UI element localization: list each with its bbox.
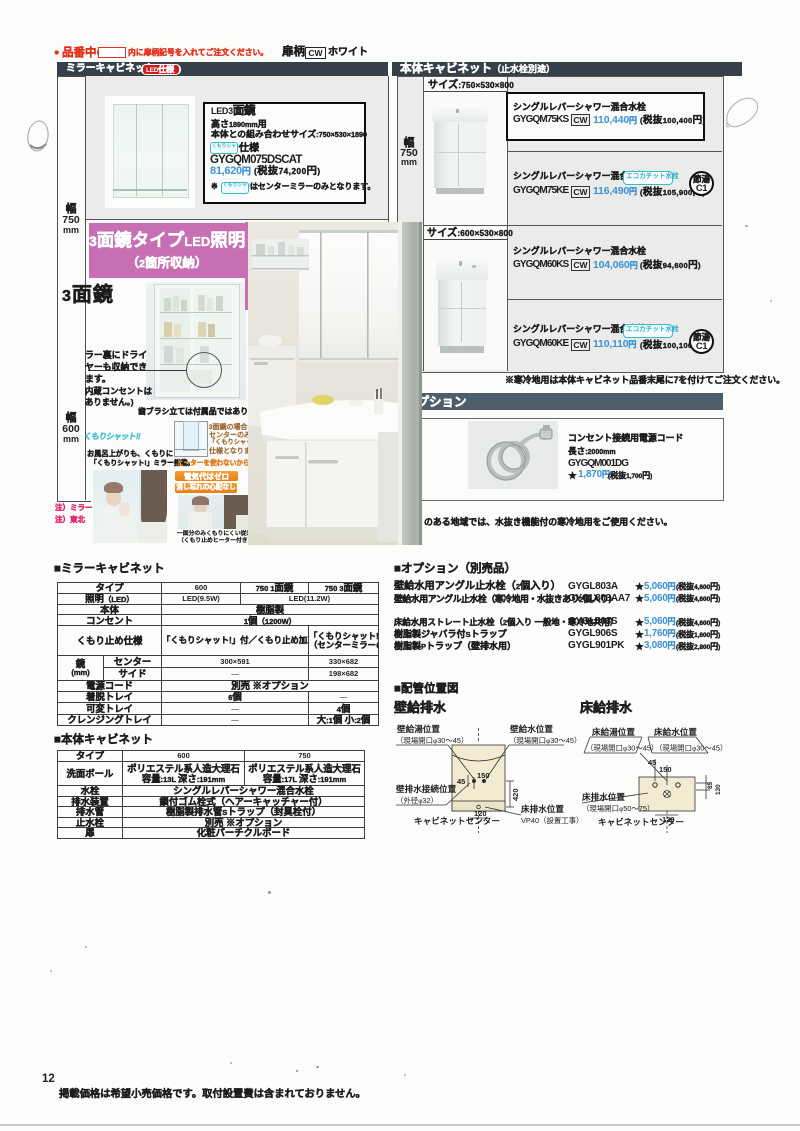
svg-text:壁給水位置: 壁給水位置 xyxy=(510,723,553,734)
svg-text:120: 120 xyxy=(474,809,487,818)
svg-text:150: 150 xyxy=(477,771,490,780)
svg-text:（現場開口φ30～45）: （現場開口φ30～45） xyxy=(396,736,468,745)
svg-text:壁給湯位置: 壁給湯位置 xyxy=(397,723,440,734)
svg-text:床排水位置: 床排水位置 xyxy=(521,803,564,814)
svg-text:420: 420 xyxy=(511,788,520,801)
svg-text:（現場開口φ30～45）: （現場開口φ30～45） xyxy=(586,744,658,753)
svg-text:壁排水接続位置: 壁排水接続位置 xyxy=(396,783,457,794)
svg-text:（現場開口φ50～75）: （現場開口φ50～75） xyxy=(582,804,654,813)
svg-text:45: 45 xyxy=(457,777,465,786)
svg-text:45: 45 xyxy=(648,758,656,767)
svg-text:（現場開口φ30～45）: （現場開口φ30～45） xyxy=(655,744,727,753)
svg-text:床給湯位置: 床給湯位置 xyxy=(592,726,635,737)
svg-text:（外径φ32）: （外径φ32） xyxy=(396,796,438,805)
svg-text:VP40（設置工事）: VP40（設置工事） xyxy=(521,816,583,825)
svg-text:130: 130 xyxy=(715,784,722,795)
svg-text:120: 120 xyxy=(662,815,675,824)
svg-text:キャビネットセンター: キャビネットセンター xyxy=(414,815,500,826)
svg-text:85: 85 xyxy=(707,781,714,789)
svg-text:床排水位置: 床排水位置 xyxy=(582,791,625,802)
svg-text:床給水位置: 床給水位置 xyxy=(654,726,697,737)
svg-text:150: 150 xyxy=(659,765,672,774)
svg-text:（現場開口φ30～45）: （現場開口φ30～45） xyxy=(509,736,581,745)
